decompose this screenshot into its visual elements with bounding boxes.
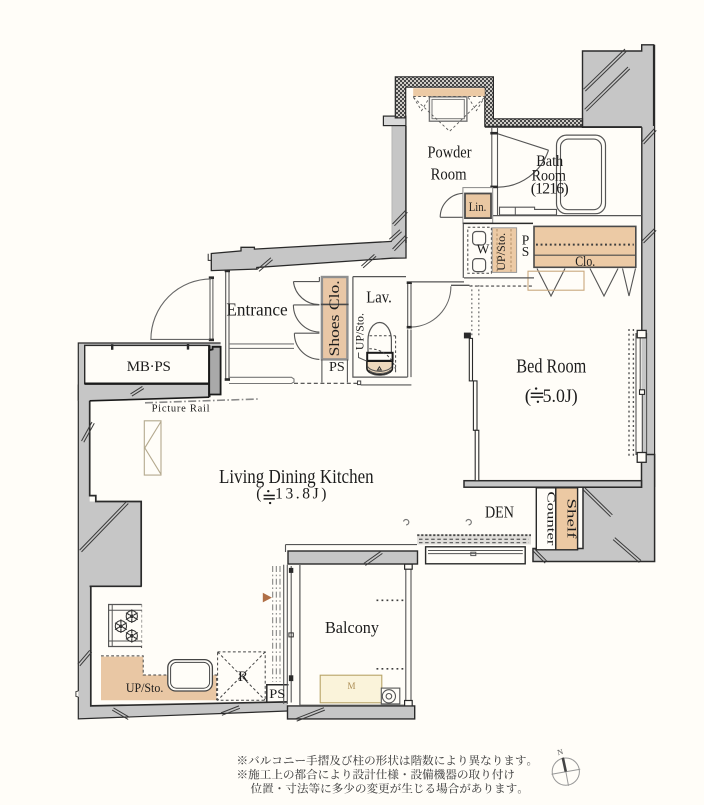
svg-text:W: W: [477, 241, 490, 256]
svg-text:(1216): (1216): [531, 180, 569, 197]
svg-text:Powder: Powder: [428, 142, 472, 161]
svg-text:S: S: [522, 244, 530, 259]
svg-text:Entrance: Entrance: [226, 300, 288, 320]
svg-text:DEN: DEN: [485, 503, 514, 522]
svg-text:PS: PS: [329, 360, 345, 375]
svg-text:Balcony: Balcony: [325, 618, 379, 637]
svg-text:UP/Sto.: UP/Sto.: [496, 233, 508, 271]
svg-text:M: M: [347, 681, 355, 691]
svg-text:Picture Rail: Picture Rail: [152, 403, 210, 414]
svg-text:Counter: Counter: [545, 492, 559, 546]
svg-text:Lav.: Lav.: [366, 288, 392, 307]
svg-text:PS: PS: [269, 686, 285, 701]
svg-text:R: R: [238, 669, 248, 685]
svg-text:Clo.: Clo.: [575, 254, 595, 270]
svg-text:(: (: [525, 386, 531, 407]
svg-text:(: (: [256, 485, 261, 502]
svg-text:Room: Room: [431, 164, 467, 183]
svg-text:Shelf: Shelf: [564, 499, 578, 540]
svg-text:Shoes Clo.: Shoes Clo.: [327, 280, 343, 356]
svg-text:UP/Sto.: UP/Sto.: [355, 313, 367, 350]
svg-text:UP/Sto.: UP/Sto.: [126, 681, 164, 695]
svg-text:5.0J): 5.0J): [543, 386, 578, 407]
svg-text:MB·PS: MB·PS: [127, 359, 171, 375]
svg-text:Lin.: Lin.: [469, 199, 487, 214]
svg-text:Bed Room: Bed Room: [516, 356, 586, 378]
